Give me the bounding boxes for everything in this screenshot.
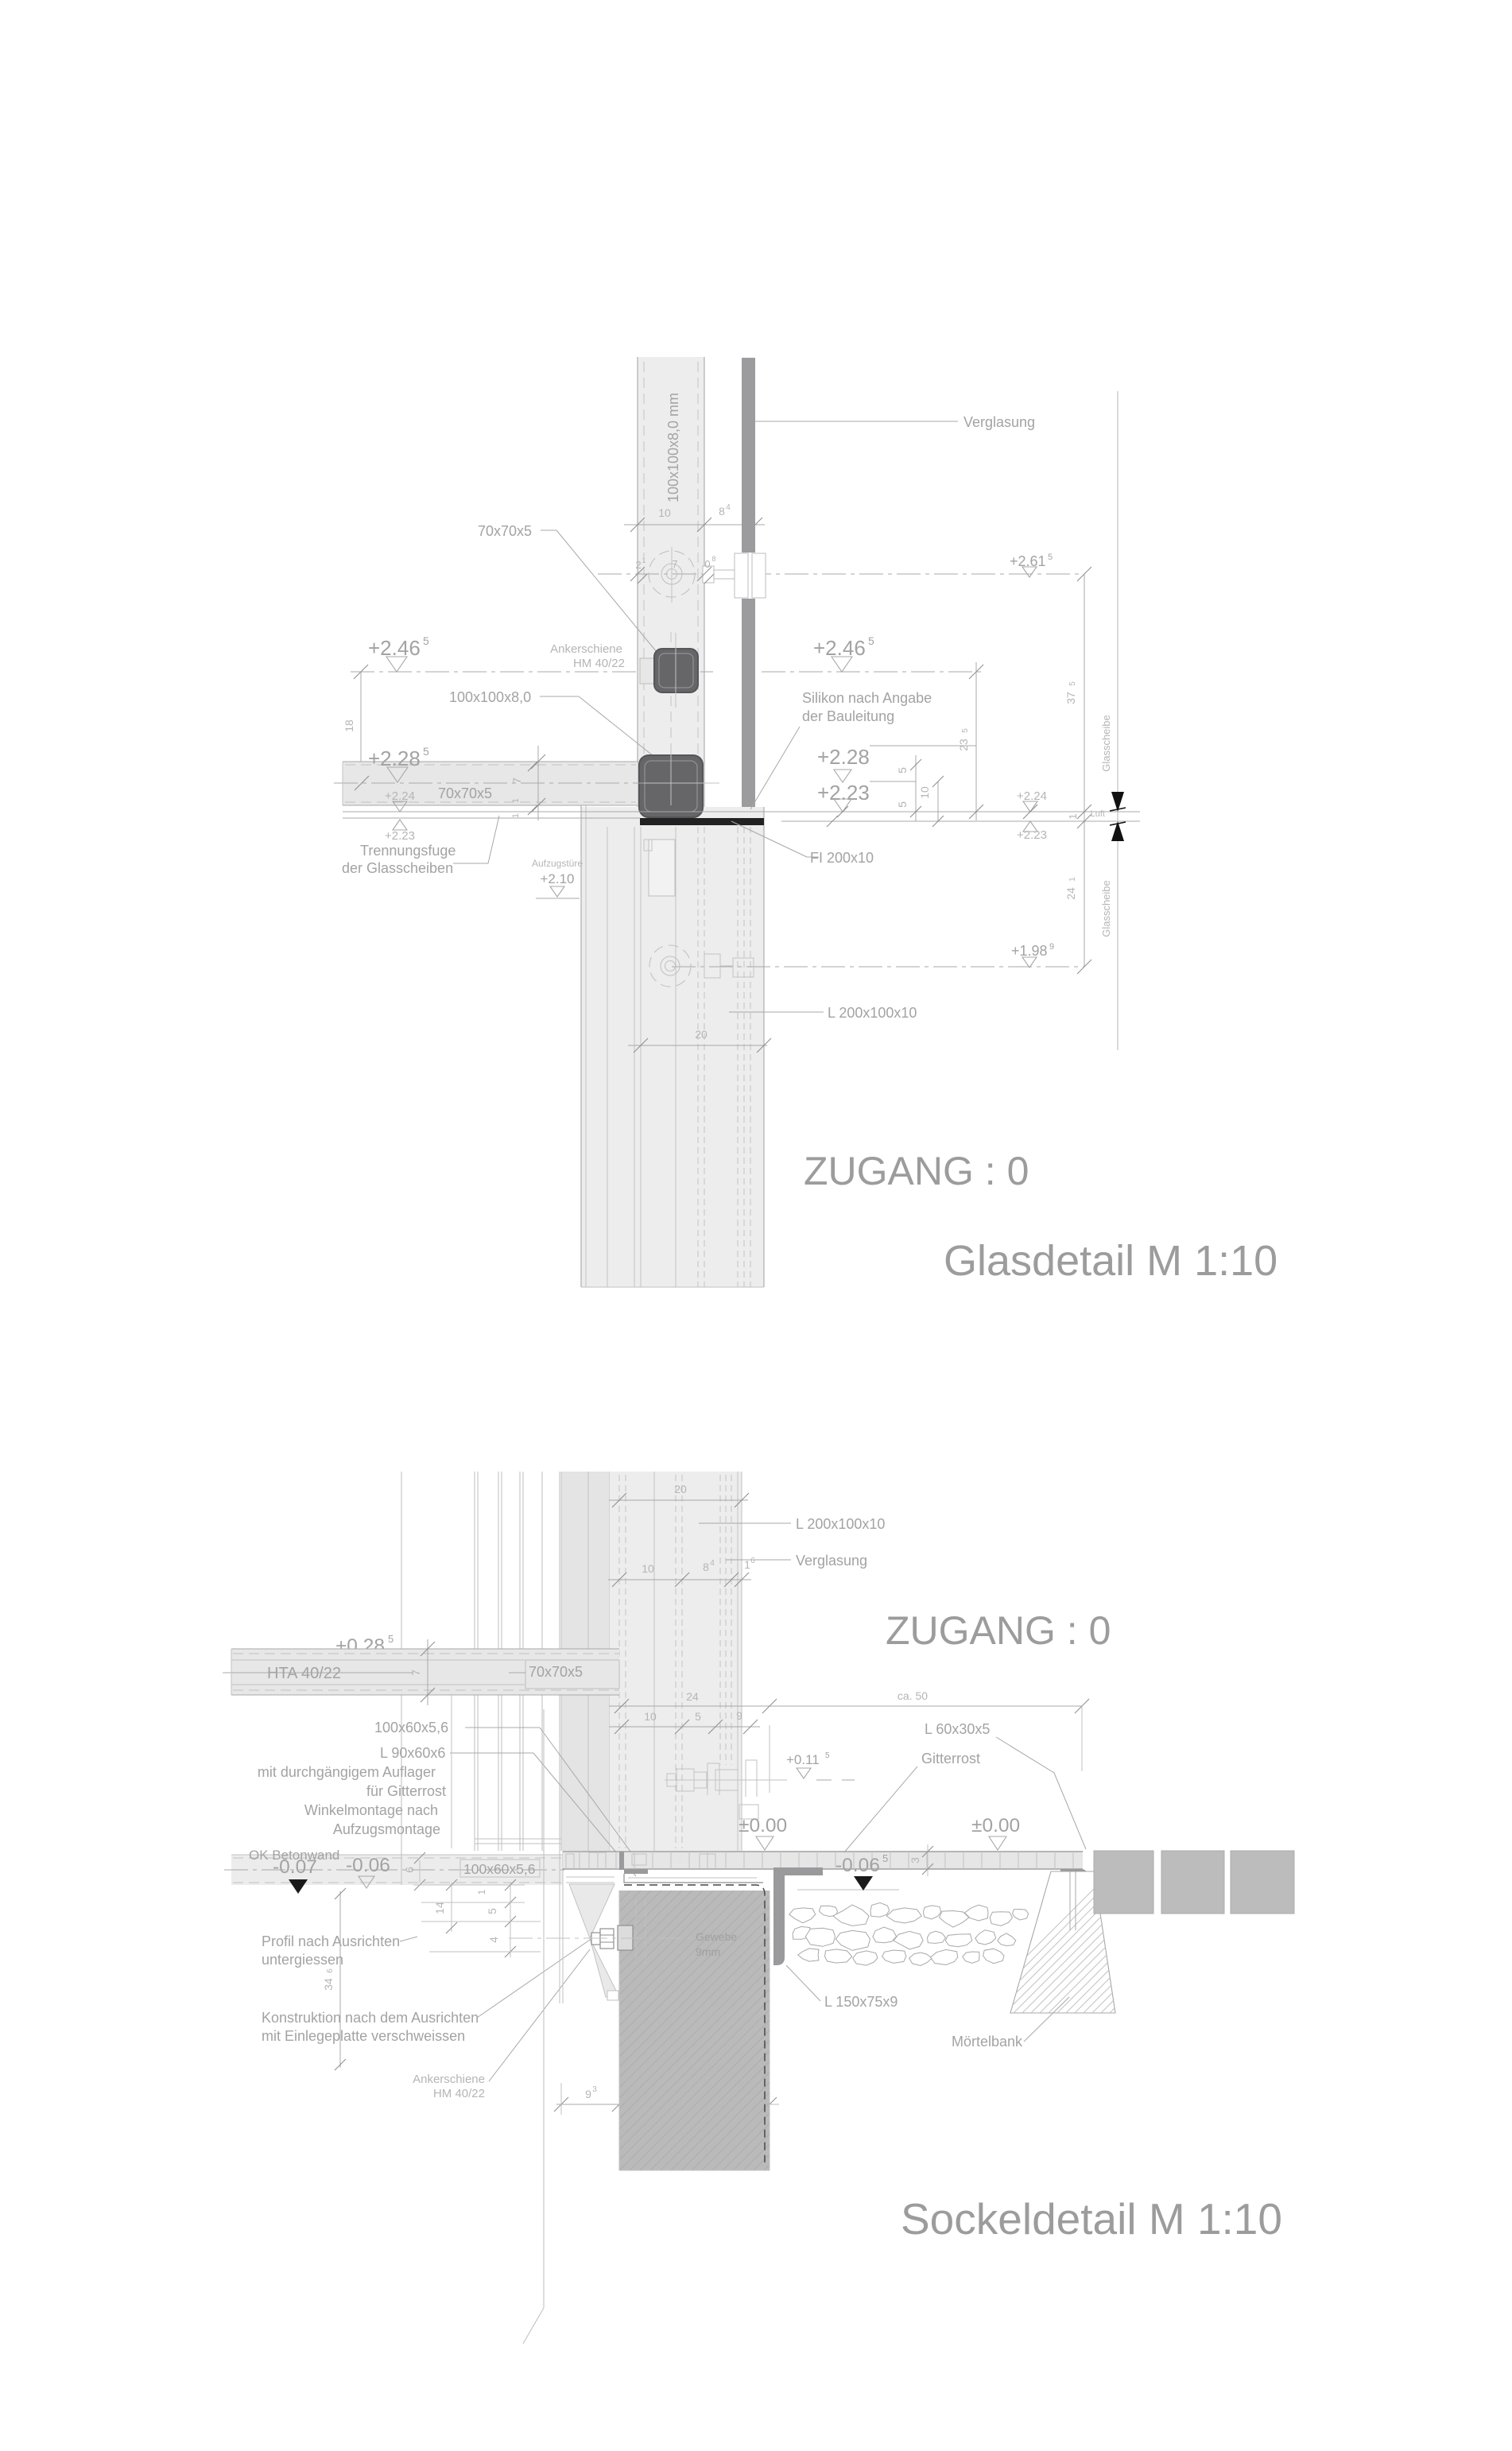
svg-text:+1.98: +1.98 bbox=[1011, 943, 1048, 959]
svg-text:34: 34 bbox=[322, 1978, 335, 1991]
svg-text:5: 5 bbox=[896, 801, 909, 808]
svg-text:24: 24 bbox=[686, 1690, 699, 1703]
svg-text:1: 1 bbox=[642, 557, 646, 564]
svg-text:7: 7 bbox=[672, 558, 677, 570]
svg-text:L 200x100x10: L 200x100x10 bbox=[828, 1005, 917, 1021]
svg-text:5: 5 bbox=[825, 1751, 830, 1760]
svg-text:10: 10 bbox=[918, 786, 931, 799]
svg-text:7: 7 bbox=[510, 778, 523, 784]
svg-text:20: 20 bbox=[674, 1483, 687, 1495]
svg-text:5: 5 bbox=[896, 767, 909, 774]
svg-text:untergiessen: untergiessen bbox=[262, 1952, 343, 1968]
svg-text:Verglasung: Verglasung bbox=[963, 414, 1035, 430]
svg-text:-0.06: -0.06 bbox=[835, 1855, 880, 1876]
svg-text:Aufzugsmontage: Aufzugsmontage bbox=[333, 1821, 440, 1837]
svg-text:L 200x100x10: L 200x100x10 bbox=[796, 1516, 885, 1532]
svg-text:L 90x60x6: L 90x60x6 bbox=[380, 1745, 445, 1761]
svg-text:5: 5 bbox=[961, 728, 970, 733]
svg-text:8: 8 bbox=[719, 505, 725, 518]
svg-text:mit Einlegeplatte verschweisse: mit Einlegeplatte verschweissen bbox=[262, 2028, 465, 2044]
svg-text:23: 23 bbox=[957, 739, 970, 751]
svg-text:8: 8 bbox=[711, 555, 715, 563]
svg-text:Verglasung: Verglasung bbox=[796, 1553, 867, 1569]
svg-text:100x60x5,6: 100x60x5,6 bbox=[463, 1861, 536, 1877]
svg-text:+2.23: +2.23 bbox=[1017, 828, 1047, 842]
svg-text:70x70x5: 70x70x5 bbox=[438, 785, 492, 801]
svg-text:100x60x5,6: 100x60x5,6 bbox=[374, 1720, 448, 1735]
svg-text:4: 4 bbox=[487, 1937, 500, 1943]
svg-text:3: 3 bbox=[909, 1857, 921, 1863]
svg-text:Glasscheibe: Glasscheibe bbox=[1100, 715, 1112, 772]
svg-text:9: 9 bbox=[585, 2088, 591, 2100]
svg-text:9: 9 bbox=[736, 1709, 742, 1722]
svg-text:5: 5 bbox=[1068, 681, 1077, 686]
svg-text:+2.10: +2.10 bbox=[540, 871, 574, 886]
svg-text:24: 24 bbox=[1064, 887, 1077, 900]
svg-text:L 60x30x5: L 60x30x5 bbox=[925, 1721, 990, 1737]
svg-text:20: 20 bbox=[695, 1028, 708, 1041]
svg-text:mit durchgängigem Auflager: mit durchgängigem Auflager bbox=[258, 1764, 436, 1780]
svg-text:10: 10 bbox=[644, 1710, 657, 1723]
svg-text:Mörtelbank: Mörtelbank bbox=[952, 2034, 1023, 2050]
svg-text:100x100x8,0 mm: 100x100x8,0 mm bbox=[665, 393, 681, 502]
svg-text:1: 1 bbox=[1068, 877, 1077, 882]
svg-text:Ankerschiene: Ankerschiene bbox=[550, 642, 622, 656]
svg-text:der Glasscheiben: der Glasscheiben bbox=[342, 860, 453, 876]
svg-text:100x100x8,0: 100x100x8,0 bbox=[449, 689, 531, 705]
svg-text:14: 14 bbox=[433, 1902, 446, 1914]
svg-text:4: 4 bbox=[726, 503, 731, 512]
svg-text:2: 2 bbox=[635, 559, 641, 571]
svg-text:6: 6 bbox=[403, 1867, 416, 1873]
svg-text:Konstruktion nach dem Ausricht: Konstruktion nach dem Ausrichten bbox=[262, 2010, 479, 2026]
svg-text:+2.23: +2.23 bbox=[385, 829, 415, 843]
svg-text:Glasdetail M 1:10: Glasdetail M 1:10 bbox=[944, 1237, 1277, 1285]
svg-text:37: 37 bbox=[1064, 692, 1077, 704]
svg-text:5: 5 bbox=[882, 1852, 888, 1864]
svg-text:+0.11: +0.11 bbox=[786, 1752, 820, 1767]
svg-text:Winkelmontage nach: Winkelmontage nach bbox=[304, 1802, 438, 1818]
svg-text:18: 18 bbox=[343, 719, 355, 732]
svg-text:+2.28: +2.28 bbox=[817, 745, 870, 769]
svg-text:ca. 50: ca. 50 bbox=[898, 1689, 928, 1702]
svg-text:5: 5 bbox=[423, 634, 429, 647]
svg-text:9mm: 9mm bbox=[696, 1945, 720, 1958]
svg-text:FI 200x10: FI 200x10 bbox=[810, 850, 874, 866]
svg-text:1: 1 bbox=[511, 798, 521, 803]
svg-text:5: 5 bbox=[695, 1710, 701, 1723]
svg-text:der Bauleitung: der Bauleitung bbox=[802, 708, 894, 724]
svg-text:1: 1 bbox=[744, 1558, 750, 1571]
svg-text:ZUGANG : 0: ZUGANG : 0 bbox=[804, 1149, 1029, 1193]
svg-text:HM 40/22: HM 40/22 bbox=[433, 2087, 485, 2100]
svg-text:Profil nach Ausrichten: Profil nach Ausrichten bbox=[262, 1933, 400, 1949]
svg-text:5: 5 bbox=[1048, 553, 1053, 562]
svg-text:5: 5 bbox=[423, 745, 429, 758]
svg-text:Ankerschiene: Ankerschiene bbox=[413, 2073, 485, 2086]
svg-text:1: 1 bbox=[511, 813, 521, 818]
svg-text:-0.06: -0.06 bbox=[346, 1855, 390, 1876]
svg-text:3: 3 bbox=[592, 2085, 597, 2094]
svg-text:-0.07: -0.07 bbox=[273, 1856, 317, 1878]
svg-text:Gitterrost: Gitterrost bbox=[921, 1751, 980, 1767]
svg-text:4: 4 bbox=[710, 1559, 715, 1568]
svg-text:HTA 40/22: HTA 40/22 bbox=[267, 1665, 341, 1682]
svg-text:Gewebe: Gewebe bbox=[696, 1930, 737, 1943]
svg-text:5: 5 bbox=[868, 634, 874, 647]
svg-text:70x70x5: 70x70x5 bbox=[529, 1664, 583, 1680]
svg-text:5: 5 bbox=[486, 1908, 498, 1914]
svg-text:Aufzugstüre: Aufzugstüre bbox=[532, 858, 583, 869]
svg-text:10: 10 bbox=[658, 506, 671, 519]
svg-text:6: 6 bbox=[750, 1557, 755, 1565]
svg-text:+2.23: +2.23 bbox=[817, 781, 870, 805]
svg-text:1: 1 bbox=[1067, 813, 1079, 819]
svg-text:5: 5 bbox=[388, 1633, 394, 1645]
svg-text:Sockeldetail M 1:10: Sockeldetail M 1:10 bbox=[901, 2194, 1282, 2244]
svg-text:±0.00: ±0.00 bbox=[739, 1815, 787, 1836]
svg-text:Silikon nach Angabe: Silikon nach Angabe bbox=[802, 690, 932, 706]
svg-text:ZUGANG : 0: ZUGANG : 0 bbox=[886, 1608, 1111, 1653]
svg-text:8: 8 bbox=[703, 1561, 709, 1573]
svg-text:7: 7 bbox=[409, 1670, 422, 1676]
svg-text:für Gitterrost: für Gitterrost bbox=[366, 1783, 446, 1799]
svg-text:Luft: Luft bbox=[1091, 809, 1105, 819]
svg-text:70x70x5: 70x70x5 bbox=[478, 523, 532, 539]
svg-text:6: 6 bbox=[326, 1968, 335, 1973]
svg-text:HM 40/22: HM 40/22 bbox=[573, 657, 625, 670]
svg-text:10: 10 bbox=[642, 1562, 654, 1575]
svg-text:Trennungsfuge: Trennungsfuge bbox=[360, 843, 456, 859]
svg-text:L 150x75x9: L 150x75x9 bbox=[824, 1994, 898, 2010]
svg-text:±0.00: ±0.00 bbox=[971, 1815, 1020, 1836]
svg-text:1: 1 bbox=[476, 1889, 487, 1894]
svg-text:Glasscheibe: Glasscheibe bbox=[1100, 880, 1112, 937]
svg-text:9: 9 bbox=[1049, 942, 1054, 952]
